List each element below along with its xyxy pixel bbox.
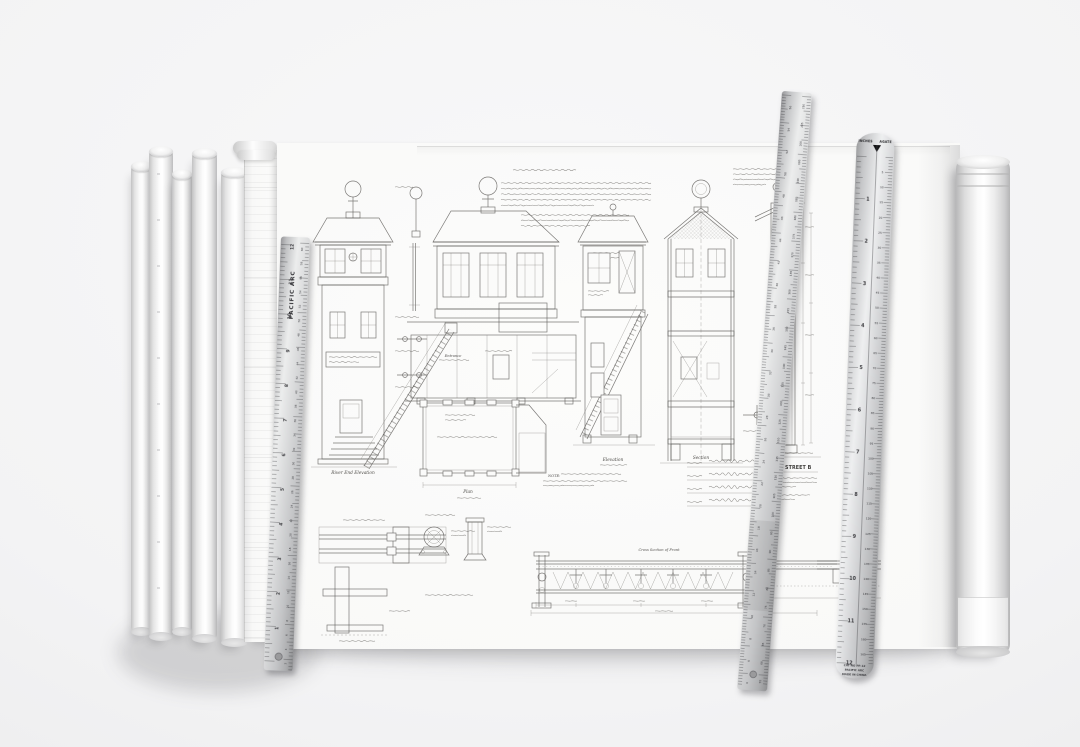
svg-text:145: 145 xyxy=(863,592,869,596)
svg-text:50: 50 xyxy=(783,172,787,176)
svg-text:8: 8 xyxy=(748,638,752,640)
svg-text:10: 10 xyxy=(287,313,293,319)
svg-text:160: 160 xyxy=(861,637,867,641)
svg-text:55: 55 xyxy=(874,321,878,325)
svg-text:10: 10 xyxy=(849,576,857,582)
svg-text:140: 140 xyxy=(782,363,786,369)
svg-text:28: 28 xyxy=(291,476,295,480)
svg-text:32: 32 xyxy=(292,447,296,451)
svg-text:14: 14 xyxy=(753,570,757,574)
svg-text:24: 24 xyxy=(762,460,766,464)
hangers xyxy=(570,569,712,589)
roll-ring xyxy=(957,185,1009,187)
svg-text:12: 12 xyxy=(286,590,290,594)
svg-text:10: 10 xyxy=(880,185,884,189)
svg-text:8: 8 xyxy=(284,384,290,387)
svg-text:125: 125 xyxy=(865,532,871,536)
svg-text:120: 120 xyxy=(776,437,780,443)
svg-text:110: 110 xyxy=(773,474,777,480)
svg-text:190: 190 xyxy=(796,178,800,184)
svg-text:56: 56 xyxy=(299,276,303,280)
svg-text:34: 34 xyxy=(292,433,296,437)
svg-text:4: 4 xyxy=(861,323,865,329)
svg-text:70: 70 xyxy=(873,366,877,370)
svg-text:135: 135 xyxy=(864,562,870,566)
svg-text:40: 40 xyxy=(876,276,880,280)
svg-text:18: 18 xyxy=(288,547,292,551)
svg-text:150: 150 xyxy=(862,607,868,611)
svg-text:26: 26 xyxy=(763,437,767,441)
svg-text:52: 52 xyxy=(298,304,302,308)
svg-text:135: 135 xyxy=(780,382,784,388)
svg-text:130: 130 xyxy=(864,547,870,551)
svg-text:58: 58 xyxy=(299,261,303,265)
svg-text:145: 145 xyxy=(783,345,787,351)
pica-divider xyxy=(856,145,877,665)
svg-text:40: 40 xyxy=(775,283,779,287)
svg-text:7: 7 xyxy=(283,419,289,422)
svg-text:52: 52 xyxy=(785,150,789,154)
roll-label-band xyxy=(958,597,1008,647)
rolled-plan-right xyxy=(956,157,1010,656)
svg-text:45: 45 xyxy=(876,291,880,295)
river-end-elevation-view: River End Elevation xyxy=(311,181,397,476)
note-label: NOTE: xyxy=(547,474,560,478)
svg-text:18: 18 xyxy=(757,526,761,530)
svg-text:20: 20 xyxy=(288,533,292,537)
svg-text:125: 125 xyxy=(778,419,782,425)
roll-ring xyxy=(957,173,1009,175)
svg-text:44: 44 xyxy=(778,238,782,242)
svg-text:46: 46 xyxy=(296,347,300,351)
svg-text:105: 105 xyxy=(772,493,776,499)
svg-text:75: 75 xyxy=(764,605,768,609)
svg-text:65: 65 xyxy=(761,642,765,646)
pica-footer-origin: MADE IN CHINA xyxy=(842,672,867,677)
svg-text:44: 44 xyxy=(295,362,299,366)
river-end-elevation-label: River End Elevation xyxy=(330,471,375,476)
svg-text:60: 60 xyxy=(300,247,304,251)
cross-section-view: Cross Section of Front xyxy=(531,548,881,616)
section-view: Section xyxy=(660,180,773,463)
svg-text:160: 160 xyxy=(787,289,791,295)
svg-text:155: 155 xyxy=(786,308,790,314)
svg-text:55: 55 xyxy=(758,679,762,683)
svg-text:50: 50 xyxy=(875,306,879,310)
svg-text:3: 3 xyxy=(277,557,283,560)
svg-text:4: 4 xyxy=(745,682,749,684)
svg-text:48: 48 xyxy=(297,333,301,337)
rolled-plan-2 xyxy=(149,147,173,639)
rolled-plan-3 xyxy=(172,170,192,634)
svg-text:8: 8 xyxy=(285,620,289,622)
svg-text:6: 6 xyxy=(284,634,288,636)
section-label: Section xyxy=(693,456,710,461)
svg-text:165: 165 xyxy=(789,270,793,276)
svg-text:34: 34 xyxy=(770,349,774,353)
svg-text:16: 16 xyxy=(287,562,291,566)
svg-text:120: 120 xyxy=(866,517,872,521)
svg-text:70: 70 xyxy=(762,624,766,628)
svg-text:80: 80 xyxy=(765,587,769,591)
svg-text:11: 11 xyxy=(847,618,854,624)
svg-text:90: 90 xyxy=(870,426,874,430)
left-ruler-brand: PACIFIC ARC xyxy=(289,270,297,319)
svg-text:2: 2 xyxy=(276,592,282,595)
svg-text:25: 25 xyxy=(878,231,882,235)
svg-text:6: 6 xyxy=(747,660,751,662)
svg-text:8: 8 xyxy=(854,492,858,498)
svg-text:170: 170 xyxy=(790,252,794,258)
svg-text:85: 85 xyxy=(766,568,770,572)
svg-text:54: 54 xyxy=(298,290,302,294)
svg-text:10: 10 xyxy=(286,604,290,608)
svg-text:42: 42 xyxy=(777,260,781,264)
svg-text:115: 115 xyxy=(775,456,779,462)
pica-header-inches: INCHES xyxy=(859,139,873,144)
svg-text:28: 28 xyxy=(765,415,769,419)
svg-text:180: 180 xyxy=(793,215,797,221)
front-elevation-view: Entrance xyxy=(361,177,581,469)
svg-text:1: 1 xyxy=(866,197,870,203)
svg-text:1: 1 xyxy=(274,627,280,630)
elevation-label: Elevation xyxy=(602,458,624,463)
svg-text:165: 165 xyxy=(860,652,866,656)
svg-text:36: 36 xyxy=(293,419,297,423)
svg-text:12: 12 xyxy=(289,244,295,250)
svg-text:90: 90 xyxy=(768,550,772,554)
svg-text:30: 30 xyxy=(767,393,771,397)
svg-text:2: 2 xyxy=(283,662,287,664)
svg-text:4: 4 xyxy=(278,523,284,526)
svg-text:95: 95 xyxy=(870,441,874,445)
svg-text:16: 16 xyxy=(755,548,759,552)
svg-text:40: 40 xyxy=(294,390,298,394)
svg-text:5: 5 xyxy=(881,170,883,174)
svg-text:100: 100 xyxy=(868,456,874,460)
svg-text:4: 4 xyxy=(284,648,288,650)
svg-text:24: 24 xyxy=(290,504,294,508)
svg-text:32: 32 xyxy=(768,371,772,375)
note-block: NOTE: xyxy=(543,474,627,486)
stair-elevation-view: Elevation xyxy=(573,204,655,465)
svg-text:9: 9 xyxy=(285,349,291,352)
svg-text:205: 205 xyxy=(800,122,804,128)
pica-header-agate: AGATE xyxy=(879,140,891,144)
svg-text:56: 56 xyxy=(788,105,792,109)
svg-text:11: 11 xyxy=(288,278,294,284)
svg-text:140: 140 xyxy=(863,577,869,581)
svg-text:30: 30 xyxy=(877,246,881,250)
svg-text:185: 185 xyxy=(794,196,798,202)
svg-text:60: 60 xyxy=(759,661,763,665)
rule-hang-hole xyxy=(750,671,757,678)
rolled-strip-tip-2 xyxy=(237,150,275,160)
svg-text:210: 210 xyxy=(801,103,805,109)
svg-text:7: 7 xyxy=(856,450,860,456)
svg-text:105: 105 xyxy=(867,471,873,475)
svg-text:22: 22 xyxy=(289,519,293,523)
svg-text:75: 75 xyxy=(872,381,876,385)
sheet-curl-shading xyxy=(918,145,960,647)
svg-text:50: 50 xyxy=(297,319,301,323)
svg-text:15: 15 xyxy=(879,200,883,204)
plan-label: Plan xyxy=(462,490,473,495)
svg-text:6: 6 xyxy=(858,407,862,413)
ruler-hang-hole xyxy=(275,653,282,660)
svg-text:22: 22 xyxy=(760,482,764,486)
svg-text:200: 200 xyxy=(798,141,802,147)
svg-text:100: 100 xyxy=(771,512,775,518)
svg-text:5: 5 xyxy=(859,365,863,371)
svg-text:175: 175 xyxy=(791,233,795,239)
svg-text:35: 35 xyxy=(877,261,881,265)
svg-text:36: 36 xyxy=(772,327,776,331)
svg-text:26: 26 xyxy=(290,490,294,494)
svg-text:150: 150 xyxy=(784,326,788,332)
svg-text:20: 20 xyxy=(879,215,883,219)
svg-text:130: 130 xyxy=(779,400,783,406)
entrance-label: Entrance xyxy=(444,354,462,358)
svg-text:60: 60 xyxy=(874,336,878,340)
photo-scene: River End Elevation xyxy=(0,0,1080,747)
svg-text:85: 85 xyxy=(871,411,875,415)
svg-text:30: 30 xyxy=(291,462,295,466)
svg-text:80: 80 xyxy=(871,396,875,400)
plan-view: Plan xyxy=(420,400,546,498)
general-notes-body xyxy=(501,182,651,205)
rolled-plan-4 xyxy=(192,149,217,641)
svg-text:65: 65 xyxy=(873,351,877,355)
svg-text:38: 38 xyxy=(773,305,777,309)
svg-text:95: 95 xyxy=(769,531,773,535)
svg-text:3: 3 xyxy=(863,281,867,287)
svg-text:38: 38 xyxy=(294,404,298,408)
svg-text:5: 5 xyxy=(280,488,286,491)
svg-text:110: 110 xyxy=(867,486,873,490)
svg-text:195: 195 xyxy=(797,159,801,165)
svg-text:48: 48 xyxy=(782,194,786,198)
cross-section-label: Cross Section of Front xyxy=(638,548,680,552)
svg-text:9: 9 xyxy=(852,534,856,540)
svg-text:155: 155 xyxy=(861,622,867,626)
svg-text:14: 14 xyxy=(287,576,291,580)
general-notes xyxy=(513,169,576,170)
svg-text:54: 54 xyxy=(787,128,791,132)
svg-text:12: 12 xyxy=(846,660,853,666)
svg-text:115: 115 xyxy=(866,502,872,506)
svg-text:10: 10 xyxy=(750,615,754,619)
svg-text:2: 2 xyxy=(864,239,868,245)
framing-details xyxy=(319,515,511,642)
svg-text:42: 42 xyxy=(295,376,299,380)
approval-signatures xyxy=(687,459,759,506)
svg-text:12: 12 xyxy=(752,592,756,596)
svg-text:6: 6 xyxy=(281,453,287,456)
svg-text:20: 20 xyxy=(758,504,762,508)
svg-text:46: 46 xyxy=(780,216,784,220)
